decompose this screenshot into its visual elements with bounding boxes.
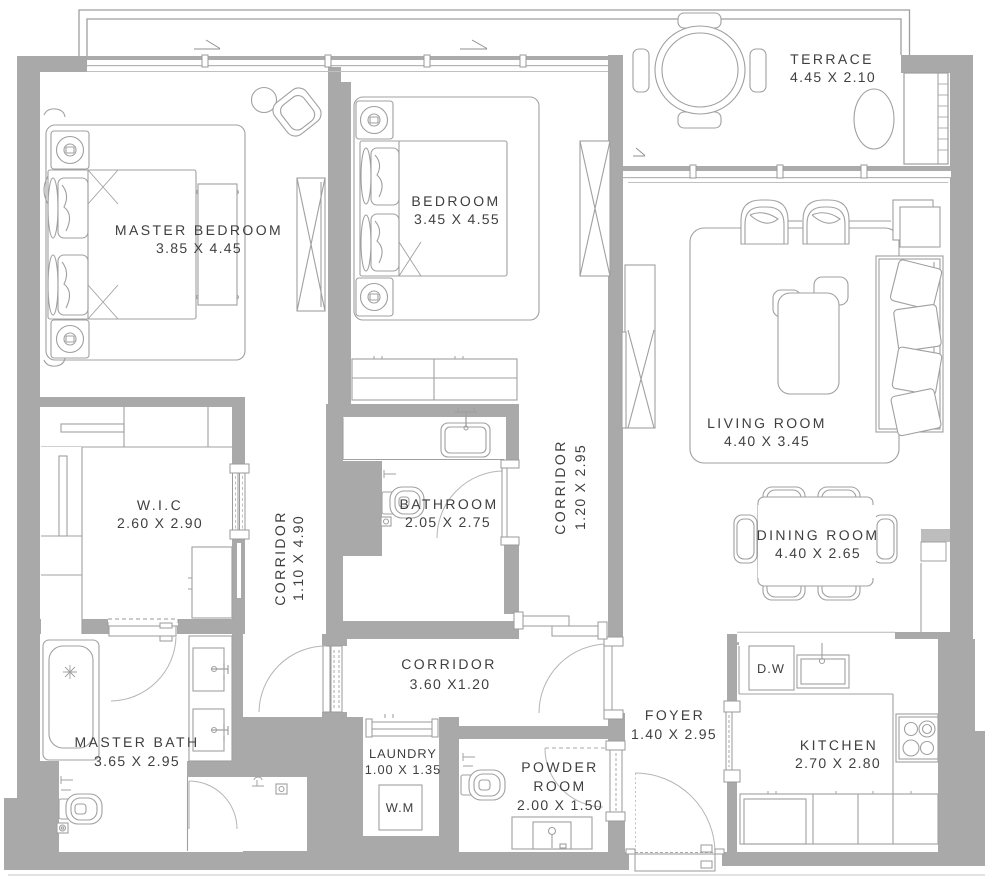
svg-text:LAUNDRY: LAUNDRY <box>369 746 437 761</box>
svg-text:3.60 X1.20: 3.60 X1.20 <box>410 676 491 692</box>
svg-text:POWDER: POWDER <box>521 759 598 775</box>
svg-text:1.20 X 2.95: 1.20 X 2.95 <box>572 444 588 530</box>
svg-text:FOYER: FOYER <box>645 707 705 723</box>
svg-text:BEDROOM: BEDROOM <box>411 193 500 209</box>
svg-text:4.40 X 3.45: 4.40 X 3.45 <box>724 433 810 449</box>
svg-text:CORRIDOR: CORRIDOR <box>401 656 496 672</box>
svg-text:1.00 X 1.35: 1.00 X 1.35 <box>365 762 441 777</box>
svg-text:ROOM: ROOM <box>533 778 586 794</box>
svg-text:4.40 X 2.65: 4.40 X 2.65 <box>775 545 861 561</box>
svg-text:KITCHEN: KITCHEN <box>800 737 878 753</box>
svg-text:2.60 X 2.90: 2.60 X 2.90 <box>117 515 203 531</box>
svg-text:D.W: D.W <box>757 661 785 676</box>
svg-text:W.I.C: W.I.C <box>137 497 183 513</box>
svg-text:LIVING ROOM: LIVING ROOM <box>707 415 827 431</box>
svg-text:MASTER BEDROOM: MASTER BEDROOM <box>115 222 283 238</box>
svg-text:2.00 X 1.50: 2.00 X 1.50 <box>517 797 603 813</box>
svg-text:4.45 X 2.10: 4.45 X 2.10 <box>790 69 876 85</box>
svg-text:3.45 X 4.55: 3.45 X 4.55 <box>414 211 500 227</box>
svg-text:MASTER BATH: MASTER BATH <box>75 734 200 750</box>
svg-text:2.05 X 2.75: 2.05 X 2.75 <box>405 514 491 530</box>
svg-text:DINING ROOM: DINING ROOM <box>757 527 880 543</box>
svg-text:2.70 X 2.80: 2.70 X 2.80 <box>795 755 881 771</box>
svg-text:W.M: W.M <box>386 800 415 815</box>
svg-text:3.85 X 4.45: 3.85 X 4.45 <box>156 240 242 256</box>
svg-text:TERRACE: TERRACE <box>790 51 874 67</box>
svg-text:1.40 X 2.95: 1.40 X 2.95 <box>631 726 717 742</box>
svg-text:BATHROOM: BATHROOM <box>399 496 498 512</box>
svg-text:CORRIDOR: CORRIDOR <box>272 510 288 605</box>
svg-text:1.10 X 4.90: 1.10 X 4.90 <box>290 515 306 601</box>
svg-text:3.65 X 2.95: 3.65 X 2.95 <box>94 753 180 769</box>
svg-text:CORRIDOR: CORRIDOR <box>552 439 568 534</box>
